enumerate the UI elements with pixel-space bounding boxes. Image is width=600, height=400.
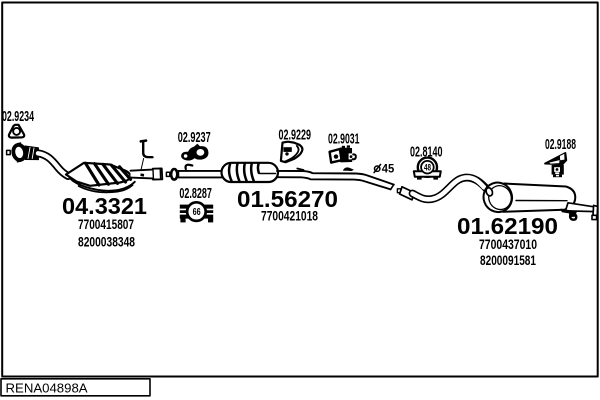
svg-text:7700421018: 7700421018 <box>261 208 318 224</box>
svg-text:8200091581: 8200091581 <box>480 252 536 268</box>
svg-text:04.3321: 04.3321 <box>62 193 147 219</box>
svg-text:7700437010: 7700437010 <box>479 236 537 252</box>
svg-text:RENA04898A: RENA04898A <box>6 380 88 395</box>
svg-text:02.9234: 02.9234 <box>2 108 34 125</box>
svg-text:02.8287: 02.8287 <box>179 185 212 202</box>
svg-text:02.9237: 02.9237 <box>178 129 211 146</box>
svg-text:02.9188: 02.9188 <box>545 136 576 153</box>
svg-text:45: 45 <box>382 161 395 175</box>
svg-text:7700415807: 7700415807 <box>78 216 134 232</box>
svg-text:8200038348: 8200038348 <box>78 233 135 249</box>
svg-text:02.9229: 02.9229 <box>279 127 312 144</box>
svg-text:48: 48 <box>424 163 431 173</box>
svg-text:02.9031: 02.9031 <box>328 131 360 148</box>
svg-text:66: 66 <box>193 207 201 218</box>
svg-text:01.62190: 01.62190 <box>457 213 558 239</box>
